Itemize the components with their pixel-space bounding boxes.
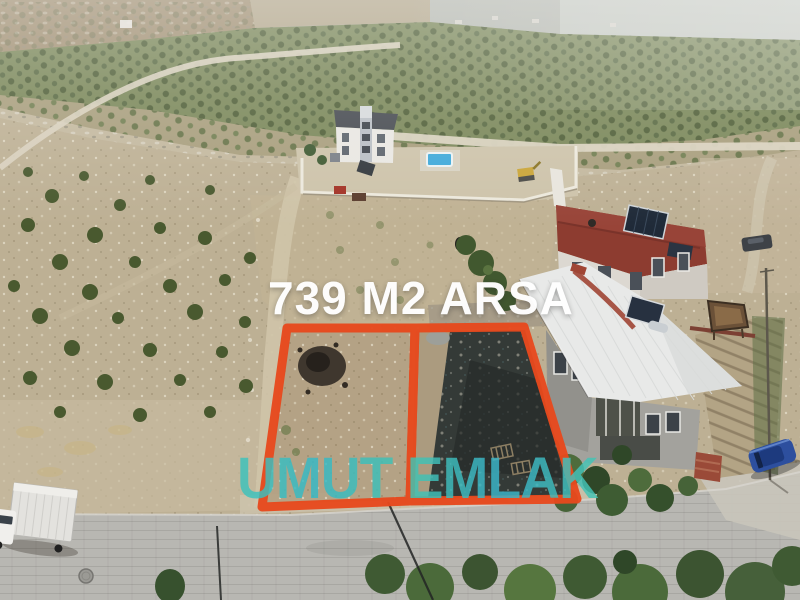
listing-photo: 739 M2 ARSA UMUT EMLAK [0, 0, 800, 600]
plot-size-label: 739 M2 ARSA [268, 275, 574, 321]
agency-watermark: UMUT EMLAK [237, 450, 598, 508]
